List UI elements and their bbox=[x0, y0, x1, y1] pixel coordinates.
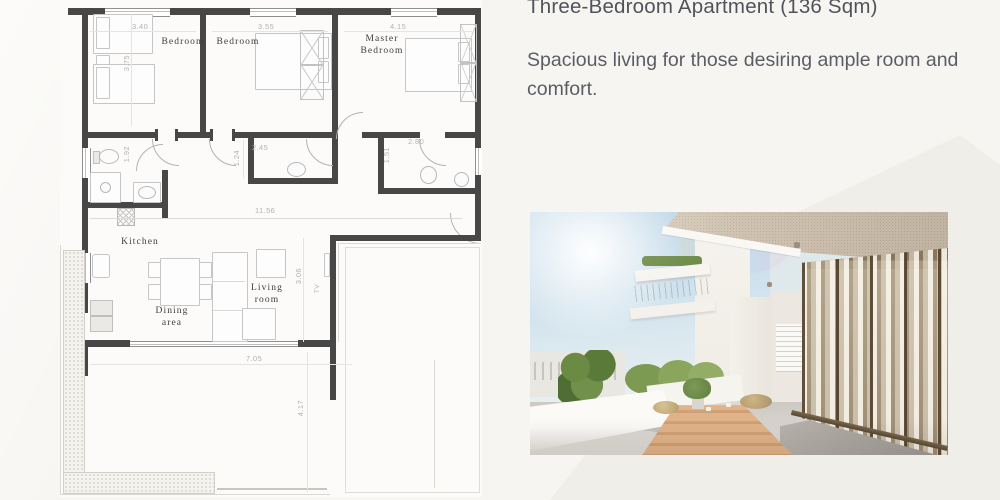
dim-label: 1.51 bbox=[382, 147, 391, 163]
dim-label: 3.40 bbox=[132, 22, 148, 31]
window bbox=[391, 8, 437, 17]
room-label-dining: Dining area bbox=[147, 305, 197, 330]
dim-line bbox=[90, 31, 196, 32]
dim-label: 2.80 bbox=[408, 137, 424, 146]
chair-icon bbox=[148, 284, 161, 300]
chair-icon bbox=[148, 262, 161, 278]
wall bbox=[362, 132, 378, 138]
sofa-line bbox=[213, 310, 245, 311]
chair-icon bbox=[199, 284, 212, 300]
dim-label: 3.06 bbox=[294, 268, 303, 284]
room-label-master: Master Bedroom bbox=[350, 33, 414, 58]
dim-label: 7.05 bbox=[246, 354, 262, 363]
wardrobe-icon bbox=[300, 30, 324, 66]
wall bbox=[296, 8, 391, 15]
terrace-line bbox=[60, 494, 330, 495]
wall bbox=[82, 340, 130, 347]
terrace-line bbox=[60, 245, 61, 495]
page: 3.40 3.75 3.55 4.15 1.92 1.24 2.45 2.80 … bbox=[0, 0, 1000, 500]
dim-label: 4.15 bbox=[390, 22, 406, 31]
terrace-outline bbox=[345, 247, 480, 493]
dim-line bbox=[303, 238, 304, 342]
wall bbox=[445, 132, 481, 138]
planter-strip bbox=[63, 472, 215, 494]
dim-line bbox=[307, 352, 308, 492]
toilet-icon bbox=[420, 166, 437, 184]
door-arc bbox=[419, 112, 473, 166]
terrace-line bbox=[434, 360, 435, 488]
wall bbox=[178, 132, 210, 138]
dim-label: 3.75 bbox=[122, 55, 131, 71]
wall bbox=[162, 170, 168, 218]
floor-plan: 3.40 3.75 3.55 4.15 1.92 1.24 2.45 2.80 … bbox=[60, 0, 482, 497]
tv-icon bbox=[324, 253, 330, 277]
chair-icon bbox=[199, 262, 212, 278]
dim-label: 11.56 bbox=[255, 206, 275, 215]
wall bbox=[82, 178, 88, 253]
counter-icon bbox=[90, 316, 113, 332]
dim-line bbox=[344, 31, 472, 32]
room-label-bedroom2: Bedroom bbox=[210, 36, 266, 48]
sink-icon bbox=[454, 172, 469, 187]
wall-line bbox=[338, 244, 339, 342]
tv-label: TV bbox=[314, 284, 321, 293]
counter-icon bbox=[90, 300, 113, 316]
room-label-bedroom1: Bedroom bbox=[155, 36, 211, 48]
description-text: Spacious living for those desiring ample… bbox=[527, 46, 977, 104]
fridge-icon bbox=[92, 254, 110, 278]
wall bbox=[332, 8, 338, 132]
dining-table-icon bbox=[160, 258, 200, 306]
sofa-line bbox=[213, 281, 245, 282]
photo-vignette bbox=[530, 212, 948, 455]
dim-label: 1.24 bbox=[232, 150, 241, 166]
wall bbox=[330, 235, 481, 241]
window bbox=[250, 8, 296, 17]
wall bbox=[88, 132, 155, 138]
shower-drain-icon bbox=[100, 182, 111, 193]
toilet-icon bbox=[287, 162, 306, 177]
sink-icon bbox=[138, 186, 156, 199]
pillow-icon bbox=[96, 67, 110, 99]
dim-line bbox=[90, 364, 352, 365]
toilet-icon bbox=[99, 149, 119, 164]
wall bbox=[330, 235, 336, 400]
dim-label: 2.45 bbox=[252, 143, 268, 152]
dim-label: 1.92 bbox=[122, 146, 131, 162]
wall bbox=[378, 188, 481, 194]
room-label-living: Living room bbox=[242, 282, 292, 307]
dim-line bbox=[243, 140, 244, 178]
window bbox=[475, 148, 482, 175]
wall-line bbox=[338, 243, 481, 244]
dim-label: 3.55 bbox=[258, 22, 274, 31]
wall bbox=[170, 8, 250, 15]
terrace-photo bbox=[530, 212, 948, 455]
dim-label: 4.17 bbox=[296, 400, 305, 416]
planter-strip bbox=[63, 250, 85, 494]
wall bbox=[248, 178, 338, 184]
armchair-icon bbox=[256, 249, 286, 278]
wardrobe-icon bbox=[460, 24, 477, 64]
pillow-icon bbox=[96, 17, 110, 49]
terrace-line bbox=[217, 488, 327, 490]
page-title: Three-Bedroom Apartment (136 Sqm) bbox=[527, 0, 987, 19]
wall bbox=[82, 8, 88, 148]
wardrobe-icon bbox=[300, 64, 324, 100]
wall bbox=[200, 8, 206, 132]
dim-line bbox=[212, 31, 328, 32]
duct-shaft bbox=[117, 208, 135, 226]
wardrobe-icon bbox=[460, 62, 477, 102]
room-label-kitchen: Kitchen bbox=[110, 236, 170, 248]
dim-line bbox=[90, 218, 462, 219]
ottoman-icon bbox=[242, 308, 276, 340]
